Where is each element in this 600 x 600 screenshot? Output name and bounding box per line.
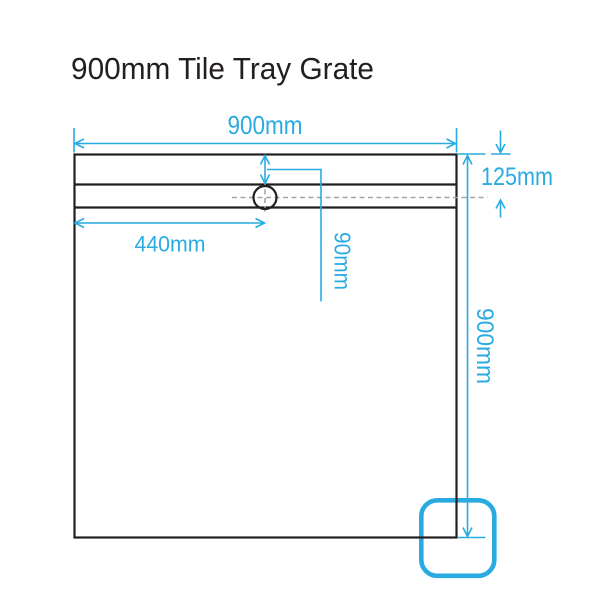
tray-outline (75, 155, 457, 538)
dimension-label-125mm: 125mm (481, 163, 553, 191)
dimension-lines-group (74, 128, 511, 538)
diagram-title: 900mm Tile Tray Grate (71, 51, 374, 86)
leader-line-90mm (267, 170, 321, 302)
tile-tray-diagram: 900mm Tile Tray Grate (0, 0, 600, 600)
dimension-label-440mm: 440mm (135, 232, 206, 257)
dimension-label-height-right: 900mm (471, 308, 498, 384)
drain-hole-circle (254, 186, 277, 209)
dimension-label-width-top: 900mm (228, 110, 303, 140)
diagram-page: 900mm Tile Tray Grate (0, 0, 600, 600)
dimension-label-90mm: 90mm (330, 232, 356, 290)
